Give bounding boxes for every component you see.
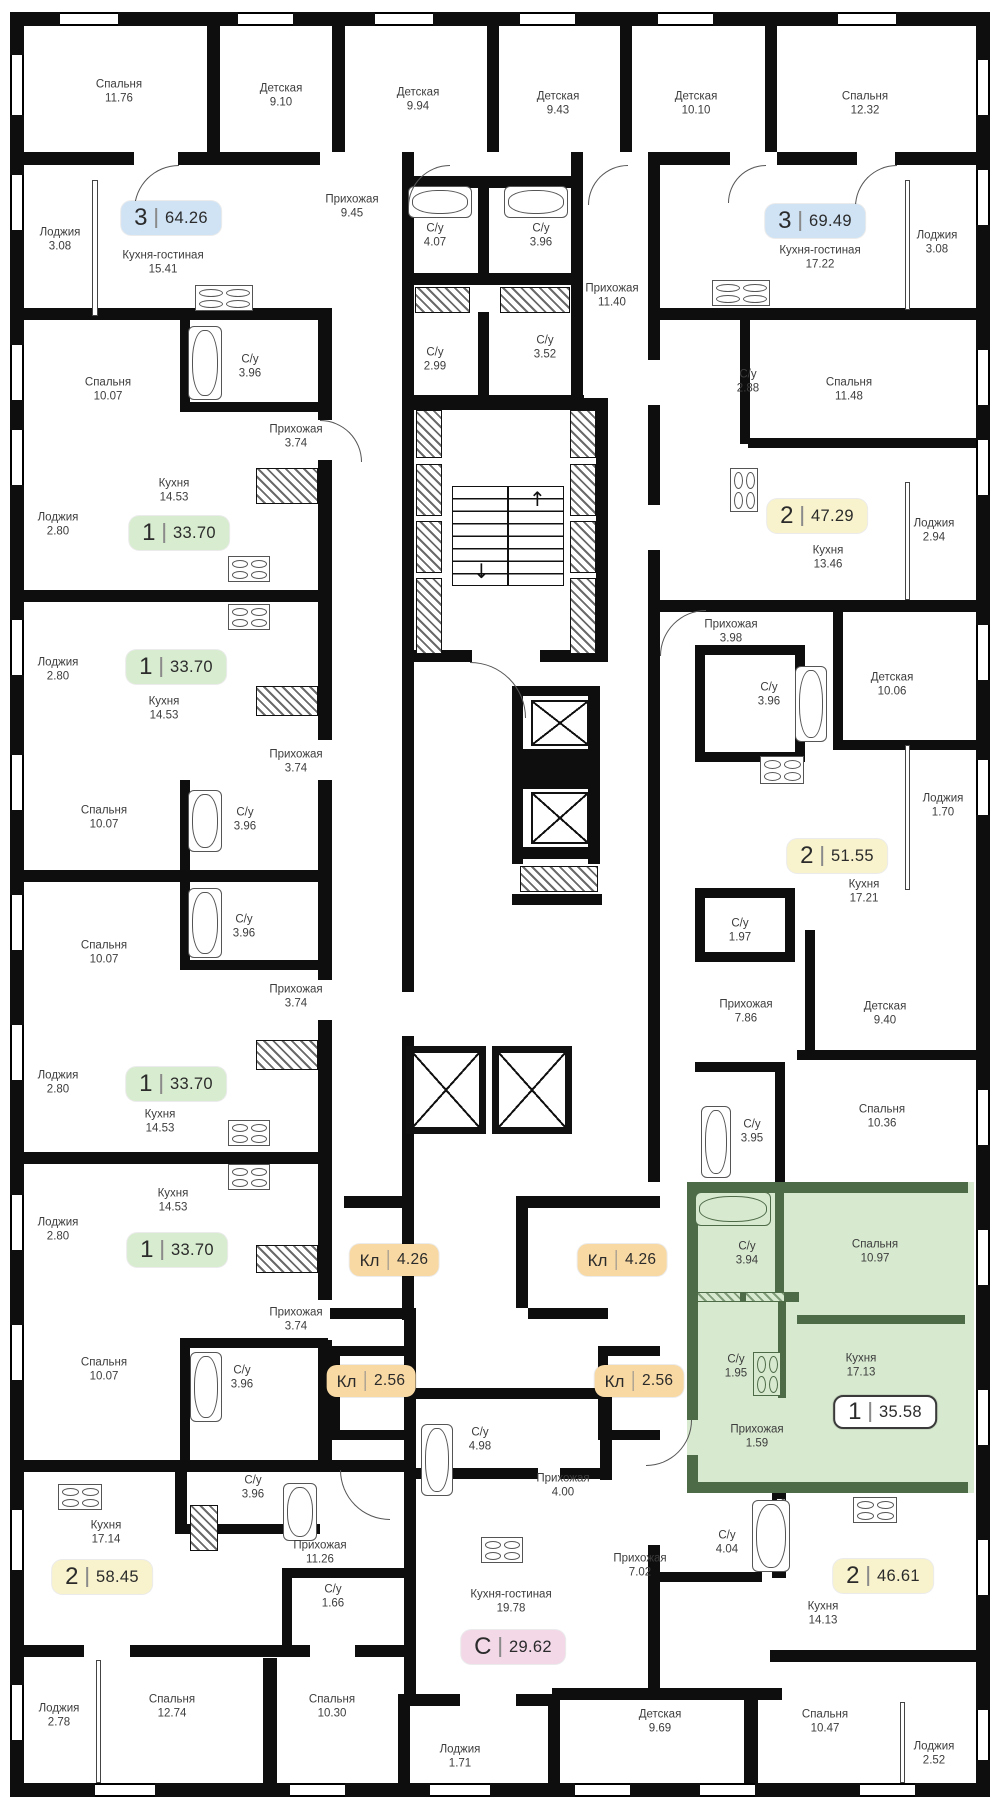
room-label: Лоджия2.80 — [38, 1216, 79, 1245]
room-area: 9.94 — [397, 100, 440, 114]
badge-area: 58.45 — [96, 1568, 139, 1587]
badge-divider — [161, 657, 163, 677]
room-area: 1.70 — [923, 806, 964, 820]
wall — [648, 308, 988, 320]
room-area: 1.59 — [730, 1437, 783, 1451]
wall — [24, 590, 320, 602]
room-label: Лоджия2.80 — [38, 1069, 79, 1098]
room-name: Лоджия — [38, 1216, 79, 1230]
room-name: Спальня — [96, 78, 142, 92]
room-label: Детская9.10 — [260, 82, 303, 111]
room-area: 3.08 — [917, 243, 958, 257]
room-area: 2.78 — [39, 1716, 80, 1730]
badge-rooms-count: 1 — [139, 1072, 152, 1096]
apartment-badge[interactable]: 133.70 — [129, 516, 229, 550]
room-name: Кухня-гостиная — [470, 1588, 551, 1602]
room-name: С/у — [242, 1474, 264, 1488]
room-area: 14.13 — [808, 1614, 839, 1628]
room-label: Кухня17.21 — [849, 878, 880, 907]
wall — [478, 312, 489, 407]
bathtub-icon — [795, 666, 827, 742]
room-label: С/у1.95 — [725, 1353, 747, 1382]
room-name: Кухня-гостиная — [122, 249, 203, 263]
room-name: Спальня — [85, 376, 131, 390]
room-label: Кухня-гостиная15.41 — [122, 249, 203, 278]
room-label: Кухня14.13 — [808, 1600, 839, 1629]
room-name: Кухня-гостиная — [779, 244, 860, 258]
apartment-badge[interactable]: С29.62 — [461, 1630, 565, 1664]
shaft-hatch — [416, 464, 442, 516]
wall — [648, 405, 660, 505]
shaft-hatch — [416, 578, 442, 654]
badge-rooms-count: С — [474, 1635, 491, 1659]
badge-rooms-count: 1 — [139, 655, 152, 679]
window — [10, 1195, 24, 1250]
badge-rooms-count: 3 — [778, 209, 791, 233]
stairs-down-arrow: ↓ — [473, 561, 490, 581]
room-label: Лоджия1.71 — [440, 1743, 481, 1772]
room-name: С/у — [737, 368, 759, 382]
badge-area: 51.55 — [831, 847, 874, 866]
room-name: Кухня — [145, 1108, 176, 1122]
room-area: 3.95 — [741, 1132, 763, 1146]
room-label: Прихожая3.98 — [704, 618, 757, 647]
room-area: 10.10 — [675, 104, 718, 118]
room-name: Прихожая — [536, 1472, 589, 1486]
window — [10, 175, 24, 230]
room-name: Прихожая — [585, 282, 638, 296]
shaft-hatch — [256, 1040, 318, 1070]
wall — [596, 398, 608, 662]
wall — [24, 152, 134, 165]
room-area: 9.45 — [325, 207, 378, 221]
vent-shaft-icon — [406, 1046, 486, 1134]
room-name: Спальня — [81, 1356, 127, 1370]
window — [375, 12, 433, 26]
bathtub-icon — [190, 1352, 222, 1422]
wall — [338, 1430, 406, 1440]
window — [238, 12, 293, 26]
room-name: Спальня — [81, 804, 127, 818]
room-area: 11.76 — [96, 92, 142, 106]
wall — [648, 152, 660, 360]
shaft-hatch — [570, 521, 596, 573]
room-name: Спальня — [802, 1708, 848, 1722]
room-area: 2.80 — [38, 1083, 79, 1097]
room-name: Спальня — [826, 376, 872, 390]
badge-rooms-count: Кл — [588, 1252, 608, 1269]
window — [520, 12, 575, 26]
room-label: Кухня-гостиная19.78 — [470, 1588, 551, 1617]
bathtub-icon — [188, 888, 222, 958]
room-area: 4.04 — [716, 1543, 738, 1557]
apartment-badge[interactable]: Кл2.56 — [327, 1365, 416, 1397]
room-label: Лоджия2.80 — [38, 511, 79, 540]
badge-divider — [156, 208, 158, 228]
apartment-badge[interactable]: 251.55 — [787, 839, 887, 873]
room-name: Спальня — [859, 1103, 905, 1117]
room-name: С/у — [725, 1353, 747, 1367]
apartment-badge[interactable]: 133.70 — [126, 1067, 226, 1101]
wall — [180, 960, 328, 970]
shaft-hatch — [500, 287, 570, 313]
room-name: Спальня — [842, 90, 888, 104]
window — [976, 1390, 990, 1445]
room-name: Прихожая — [269, 983, 322, 997]
badge-area: 2.56 — [642, 1372, 673, 1390]
badge-rooms-count: Кл — [337, 1373, 357, 1390]
badge-rooms-count: 2 — [800, 844, 813, 868]
highlight-shaft-hatch — [745, 1292, 785, 1302]
room-area: 3.74 — [269, 997, 322, 1011]
apartment-badge[interactable]: Кл4.26 — [350, 1244, 439, 1276]
badge-divider — [364, 1371, 366, 1391]
room-label: Спальня11.48 — [826, 376, 872, 405]
room-name: Кухня — [849, 878, 880, 892]
apartment-badge[interactable]: 258.45 — [52, 1560, 152, 1594]
shaft-hatch — [416, 410, 442, 458]
stairs-up-arrow: ↑ — [529, 489, 546, 509]
room-name: С/у — [469, 1426, 491, 1440]
stove-icon — [228, 1164, 270, 1190]
wall — [180, 1338, 328, 1348]
wall — [648, 658, 660, 1182]
room-area: 2.88 — [737, 382, 759, 396]
room-label: Кухня17.14 — [91, 1519, 122, 1548]
window — [290, 1783, 345, 1797]
room-name: Лоджия — [440, 1743, 481, 1757]
room-label: С/у3.96 — [233, 913, 255, 942]
wall — [516, 1196, 528, 1308]
room-area: 11.48 — [826, 390, 872, 404]
badge-divider — [870, 1402, 872, 1422]
room-label: Прихожая3.74 — [269, 748, 322, 777]
apartment-badge[interactable]: Кл2.56 — [595, 1365, 684, 1397]
window — [860, 1783, 915, 1797]
wall — [695, 1062, 785, 1072]
badge-rooms-count: 2 — [780, 504, 793, 528]
room-area: 9.69 — [639, 1722, 682, 1736]
room-area: 4.07 — [424, 236, 446, 250]
room-label: Детская9.69 — [639, 1708, 682, 1737]
apartment-badge[interactable]: 133.70 — [126, 650, 226, 684]
elevator-icon — [531, 700, 589, 746]
room-label: Спальня10.30 — [309, 1693, 355, 1722]
badge-area: 69.49 — [809, 212, 852, 231]
badge-area: 33.70 — [171, 1241, 214, 1260]
badge-divider — [822, 846, 824, 866]
room-area: 10.07 — [81, 818, 127, 832]
room-area: 12.32 — [842, 104, 888, 118]
wall — [263, 1658, 277, 1785]
wall — [178, 152, 320, 165]
room-label: С/у3.94 — [736, 1240, 758, 1269]
room-label: Спальня10.47 — [802, 1708, 848, 1737]
stove-icon — [228, 1120, 270, 1146]
room-label: С/у1.66 — [322, 1583, 344, 1612]
room-name: Кухня — [813, 544, 844, 558]
stove-icon — [228, 604, 270, 630]
room-area: 3.94 — [736, 1254, 758, 1268]
shaft-hatch — [570, 410, 596, 458]
window — [10, 755, 24, 810]
room-label: Лоджия2.78 — [39, 1702, 80, 1731]
room-name: Спальня — [852, 1238, 898, 1252]
apartment-badge[interactable]: 247.29 — [767, 499, 867, 533]
bathtub-icon — [421, 1424, 453, 1496]
apartment-badge[interactable]: 246.61 — [833, 1559, 933, 1593]
apartment-badge[interactable]: 133.70 — [127, 1233, 227, 1267]
room-label: Прихожая3.74 — [269, 1306, 322, 1335]
room-area: 3.74 — [269, 437, 322, 451]
badge-divider — [500, 1637, 502, 1657]
wall — [398, 1694, 410, 1784]
wall — [180, 402, 328, 412]
window — [976, 1540, 990, 1595]
bathtub-icon — [283, 1483, 317, 1541]
room-label: Кухня13.46 — [813, 544, 844, 573]
highlight-wall — [775, 1193, 784, 1293]
wall — [785, 888, 795, 962]
room-name: С/у — [231, 1364, 253, 1378]
room-name: Прихожая — [269, 748, 322, 762]
highlight-wall — [797, 1315, 965, 1324]
badge-rooms-count: 2 — [846, 1564, 859, 1588]
room-area: 17.21 — [849, 892, 880, 906]
badge-divider — [615, 1250, 617, 1270]
room-label: Детская9.94 — [397, 86, 440, 115]
window — [976, 625, 990, 680]
wall — [895, 152, 976, 165]
wall — [600, 1388, 612, 1480]
badge-rooms-count: 2 — [65, 1565, 78, 1589]
apartment-badge[interactable]: 135.58 — [833, 1395, 937, 1429]
room-label: Прихожая7.02 — [613, 1552, 666, 1581]
wall — [833, 740, 988, 750]
room-area: 3.96 — [758, 695, 780, 709]
wall — [338, 1346, 406, 1356]
room-name: Лоджия — [38, 511, 79, 525]
room-area: 17.13 — [846, 1366, 877, 1380]
room-name: Прихожая — [269, 423, 322, 437]
wall — [130, 1645, 310, 1657]
door-arc — [320, 420, 362, 462]
room-name: Кухня — [808, 1600, 839, 1614]
badge-area: 4.26 — [397, 1251, 428, 1269]
room-area: 10.06 — [871, 685, 914, 699]
badge-area: 4.26 — [625, 1251, 656, 1269]
window — [575, 1783, 630, 1797]
wall — [332, 26, 345, 152]
room-label: Лоджия3.08 — [40, 226, 81, 255]
room-area: 10.47 — [802, 1722, 848, 1736]
room-label: Спальня10.07 — [81, 804, 127, 833]
wall — [416, 1388, 612, 1399]
window — [10, 1510, 24, 1570]
shaft-hatch — [256, 468, 318, 504]
wall — [777, 152, 857, 165]
badge-divider — [162, 1240, 164, 1260]
room-label: Прихожая4.00 — [536, 1472, 589, 1501]
badge-rooms-count: 1 — [140, 1238, 153, 1262]
shaft-hatch — [416, 521, 442, 573]
wall — [748, 438, 976, 448]
window — [10, 430, 24, 485]
room-area: 19.78 — [470, 1602, 551, 1616]
window — [10, 1325, 24, 1380]
door-arc — [855, 165, 897, 207]
room-area: 9.40 — [864, 1014, 907, 1028]
room-label: Лоджия3.08 — [917, 229, 958, 258]
badge-divider — [164, 523, 166, 543]
bathtub-icon — [695, 1192, 771, 1226]
room-name: С/у — [758, 681, 780, 695]
room-label: Спальня10.07 — [85, 376, 131, 405]
room-area: 3.96 — [242, 1488, 264, 1502]
room-label: Кухня14.53 — [159, 477, 190, 506]
wall — [660, 152, 730, 165]
room-name: Кухня — [846, 1352, 877, 1366]
wall — [512, 894, 602, 905]
room-label: Кухня-гостиная17.22 — [779, 244, 860, 273]
window — [976, 440, 990, 495]
wall — [292, 1568, 414, 1578]
window — [976, 350, 990, 405]
room-label: Лоджия2.94 — [914, 517, 955, 546]
wall — [588, 686, 600, 864]
room-label: Прихожая3.74 — [269, 983, 322, 1012]
room-name: С/у — [233, 913, 255, 927]
wall — [695, 952, 795, 962]
shaft-hatch — [190, 1505, 218, 1551]
apartment-badge[interactable]: 364.26 — [121, 201, 221, 235]
room-area: 2.80 — [38, 670, 79, 684]
room-label: Прихожая11.40 — [585, 282, 638, 311]
room-area: 10.36 — [859, 1117, 905, 1131]
room-area: 3.08 — [40, 240, 81, 254]
badge-divider — [868, 1566, 870, 1586]
badge-area: 35.58 — [879, 1403, 922, 1422]
bathtub-icon — [701, 1106, 731, 1178]
room-label: Лоджия2.80 — [38, 656, 79, 685]
window — [700, 1783, 755, 1797]
room-label: С/у1.97 — [729, 917, 751, 946]
wall — [318, 1020, 332, 1300]
wall — [744, 1688, 758, 1785]
room-area: 14.53 — [159, 491, 190, 505]
window — [60, 12, 118, 26]
wall — [330, 1308, 414, 1319]
door-arc — [588, 165, 628, 205]
window — [10, 895, 24, 950]
badge-divider — [632, 1371, 634, 1391]
room-area: 1.66 — [322, 1597, 344, 1611]
room-label: Прихожая7.86 — [719, 998, 772, 1027]
highlight-shaft-hatch — [697, 1292, 741, 1302]
elevator-icon — [531, 792, 589, 844]
loggia-rail — [96, 1660, 101, 1783]
badge-area: 33.70 — [173, 524, 216, 543]
room-name: Лоджия — [914, 517, 955, 531]
loggia-rail — [92, 180, 98, 316]
room-name: С/у — [534, 334, 556, 348]
room-name: Спальня — [309, 1693, 355, 1707]
room-name: С/у — [234, 806, 256, 820]
room-area: 3.98 — [704, 632, 757, 646]
room-name: С/у — [322, 1583, 344, 1597]
stove-icon — [753, 1352, 781, 1396]
room-name: Детская — [639, 1708, 682, 1722]
room-name: Лоджия — [38, 1069, 79, 1083]
window — [976, 760, 990, 815]
room-name: С/у — [530, 222, 552, 236]
badge-area: 33.70 — [170, 1075, 213, 1094]
room-name: С/у — [239, 353, 261, 367]
window — [430, 1783, 490, 1797]
room-name: Прихожая — [293, 1539, 346, 1553]
window — [838, 12, 896, 26]
room-label: Спальня10.07 — [81, 939, 127, 968]
room-name: Лоджия — [914, 1740, 955, 1754]
room-label: Кухня14.53 — [158, 1187, 189, 1216]
window — [658, 12, 713, 26]
vent-shaft-icon — [492, 1046, 572, 1134]
room-name: Кухня — [159, 477, 190, 491]
badge-area: 2.56 — [374, 1372, 405, 1390]
room-area: 3.96 — [233, 927, 255, 941]
wall — [797, 1050, 988, 1060]
wall — [571, 152, 583, 407]
stove-icon — [760, 756, 804, 784]
room-label: Спальня10.97 — [852, 1238, 898, 1267]
shaft-hatch — [256, 1245, 318, 1273]
window — [976, 1230, 990, 1285]
room-area: 17.14 — [91, 1533, 122, 1547]
wall — [660, 1572, 762, 1582]
wall — [24, 870, 320, 882]
wall — [402, 398, 608, 410]
door-arc — [660, 610, 706, 656]
loggia-rail — [905, 180, 910, 310]
room-label: С/у4.04 — [716, 1529, 738, 1558]
room-label: Детская9.40 — [864, 1000, 907, 1029]
wall — [487, 26, 499, 152]
room-name: Лоджия — [40, 226, 81, 240]
loggia-rail — [900, 1702, 905, 1783]
badge-divider — [387, 1250, 389, 1270]
room-name: С/у — [424, 346, 446, 360]
highlight-wall — [687, 1482, 968, 1493]
room-name: Лоджия — [39, 1702, 80, 1716]
door-arc — [728, 165, 766, 203]
apartment-badge[interactable]: Кл4.26 — [578, 1244, 667, 1276]
wall — [695, 645, 705, 762]
wall — [765, 26, 777, 152]
room-label: С/у3.96 — [239, 353, 261, 382]
room-label: Лоджия1.70 — [923, 792, 964, 821]
badge-area: 64.26 — [165, 209, 208, 228]
room-area: 14.53 — [149, 709, 180, 723]
apartment-badge[interactable]: 369.49 — [765, 204, 865, 238]
shaft-hatch — [256, 686, 318, 716]
room-label: Спальня10.07 — [81, 1356, 127, 1385]
room-name: Детская — [537, 90, 580, 104]
room-label: Прихожая9.45 — [325, 193, 378, 222]
room-area: 13.46 — [813, 558, 844, 572]
badge-area: 33.70 — [170, 658, 213, 677]
room-area: 3.96 — [530, 236, 552, 250]
room-area: 10.07 — [81, 953, 127, 967]
